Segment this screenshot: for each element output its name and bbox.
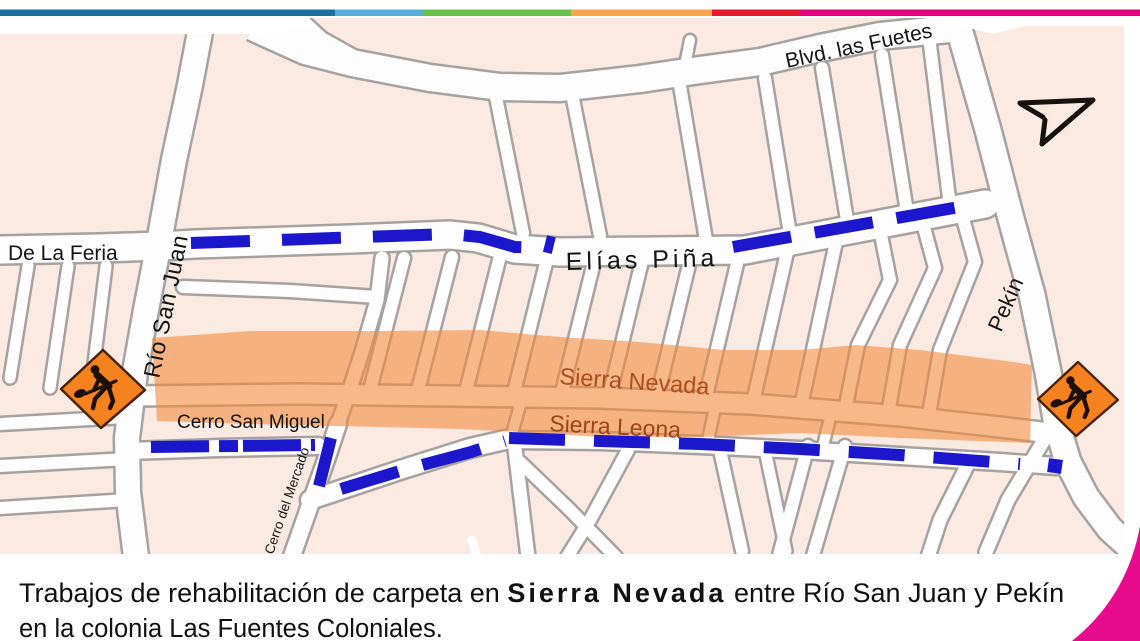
svg-text:Elías Piña: Elías Piña bbox=[565, 244, 718, 276]
svg-text:Trabajos de rehabilitación de: Trabajos de rehabilitación de carpeta en… bbox=[19, 578, 1064, 608]
svg-text:Cerro San Miguel: Cerro San Miguel bbox=[177, 412, 325, 433]
svg-text:De La Feria: De La Feria bbox=[8, 242, 118, 265]
svg-text:en la colonia Las Fuentes Colo: en la colonia Las Fuentes Coloniales. bbox=[19, 615, 443, 641]
